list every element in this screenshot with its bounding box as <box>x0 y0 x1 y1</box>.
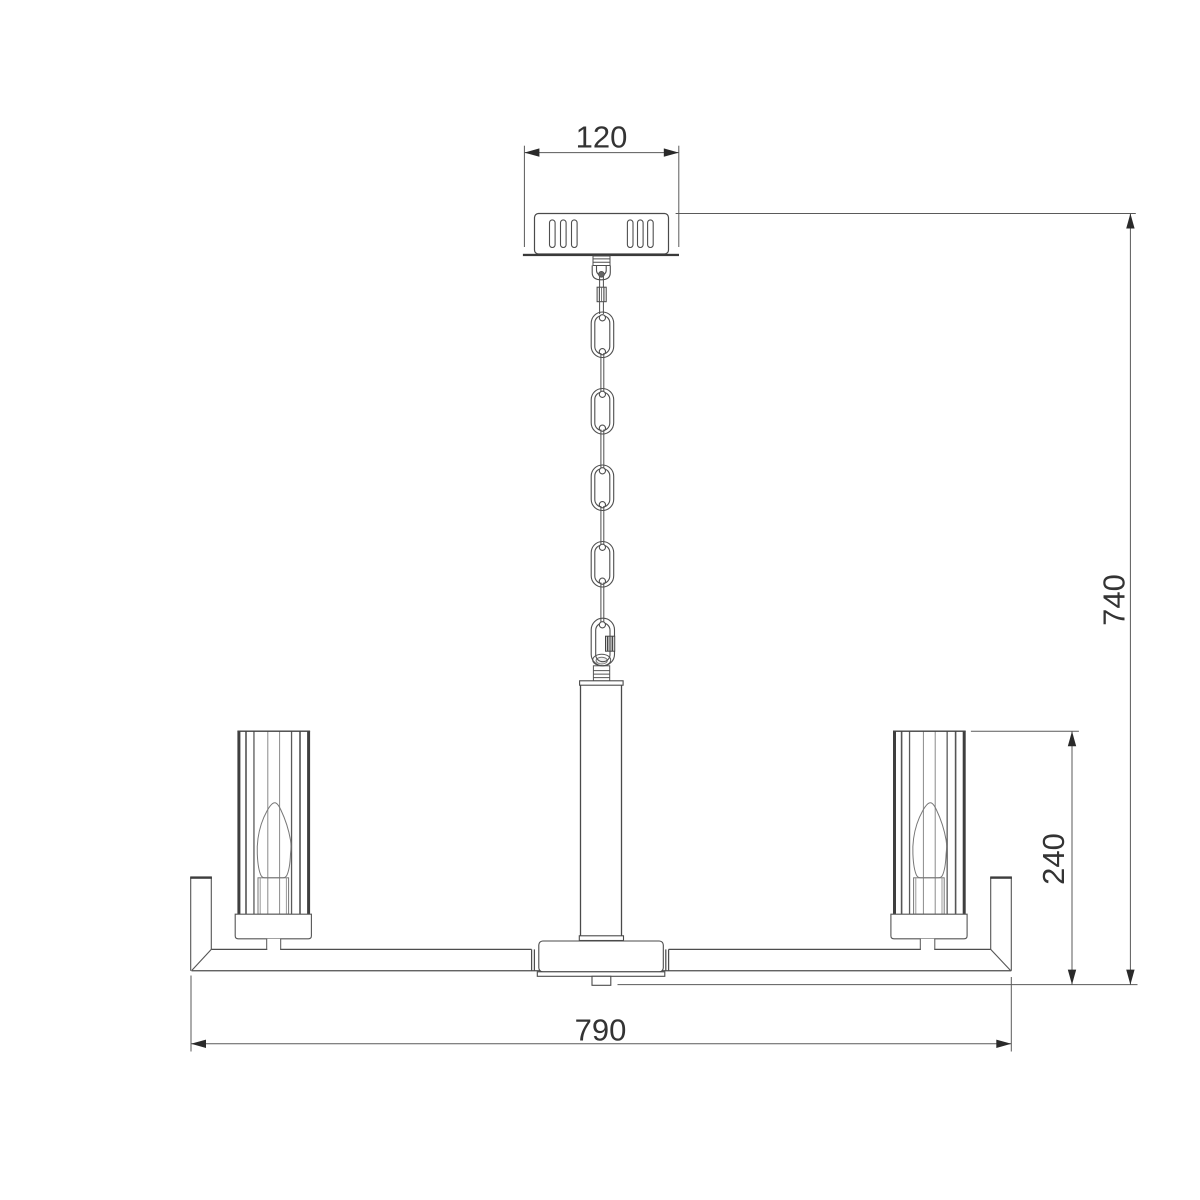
svg-text:790: 790 <box>575 1013 627 1048</box>
svg-text:120: 120 <box>576 120 628 155</box>
svg-text:240: 240 <box>1036 833 1071 885</box>
svg-text:740: 740 <box>1096 574 1131 626</box>
